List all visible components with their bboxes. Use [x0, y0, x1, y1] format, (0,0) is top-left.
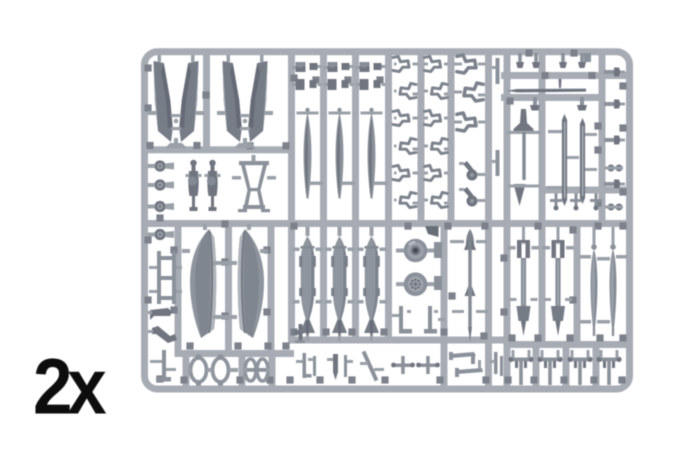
svg-text:2x: 2x — [33, 342, 107, 430]
